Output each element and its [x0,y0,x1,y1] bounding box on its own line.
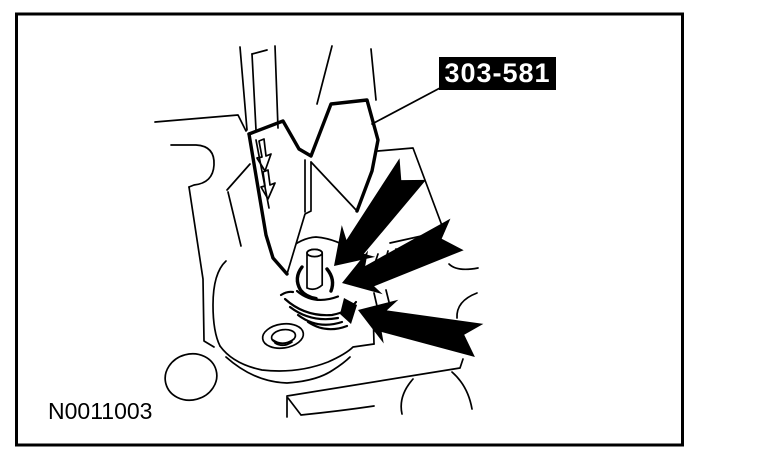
tool-callout: 303-581 [439,57,556,90]
figure-number: N0011003 [48,398,152,425]
indicator-arrow-bottom [350,280,487,376]
bolt-hole-outer [261,321,305,350]
line-art-illustration [0,0,768,458]
tool-callout-label: 303-581 [444,58,550,89]
figure-canvas: 303-581 N0011003 [0,0,768,458]
cam-lobe [160,348,222,406]
callout-leader-line [372,88,440,124]
